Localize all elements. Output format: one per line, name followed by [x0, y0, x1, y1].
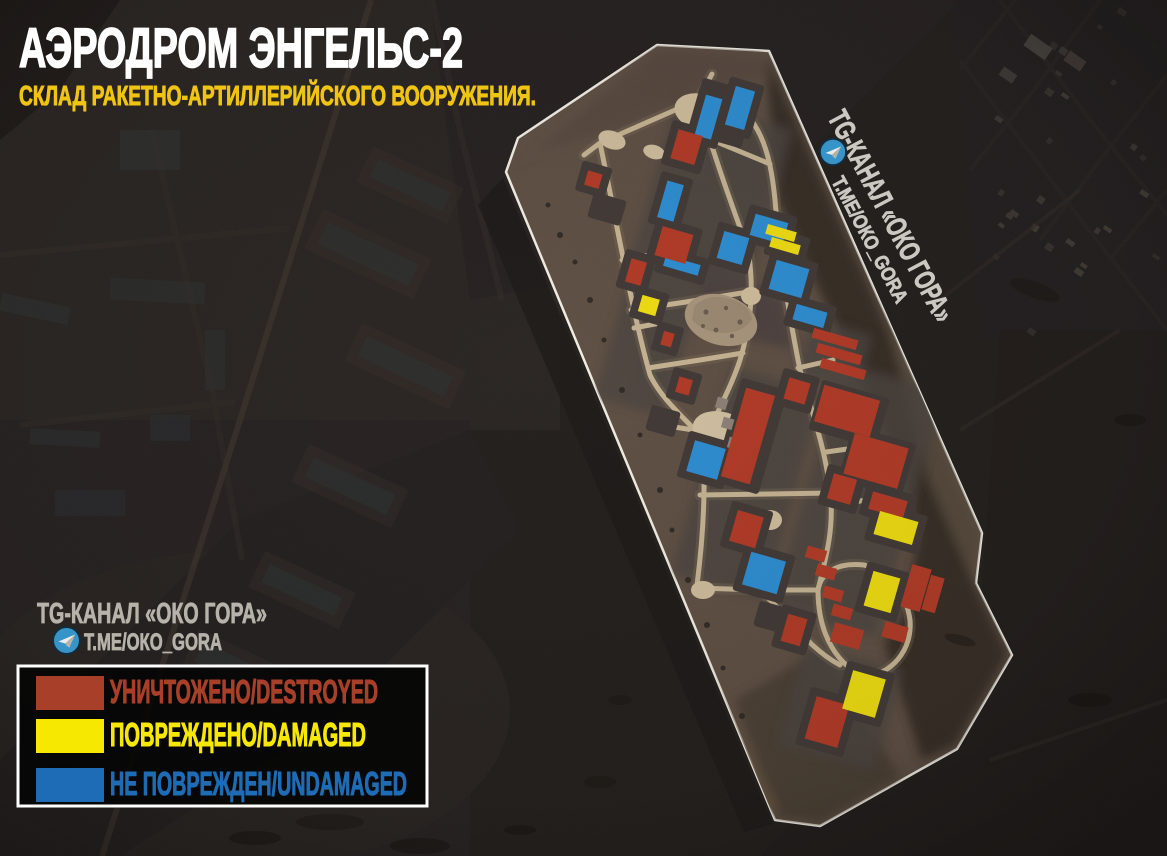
svg-text:УНИЧТОЖЕНО/DESTROYED: УНИЧТОЖЕНО/DESTROYED: [110, 673, 378, 710]
svg-text:ТG-КАНАЛ «ОКО ГОРА»: ТG-КАНАЛ «ОКО ГОРА»: [37, 598, 267, 630]
svg-text:Т.МЕ/ОКО_GORA: Т.МЕ/ОКО_GORA: [84, 629, 222, 656]
svg-text:НЕ ПОВРЕЖДЕН/UNDAMAGED: НЕ ПОВРЕЖДЕН/UNDAMAGED: [110, 765, 407, 802]
svg-text:АЭРОДРОМ ЭНГЕЛЬС-2: АЭРОДРОМ ЭНГЕЛЬС-2: [19, 16, 463, 79]
svg-text:ПОВРЕЖДЕНО/DAMAGED: ПОВРЕЖДЕНО/DAMAGED: [110, 716, 366, 753]
svg-text:СКЛАД РАКЕТНО-АРТИЛЛЕРИЙСКОГО: СКЛАД РАКЕТНО-АРТИЛЛЕРИЙСКОГО ВООРУЖЕНИЯ…: [19, 79, 536, 111]
